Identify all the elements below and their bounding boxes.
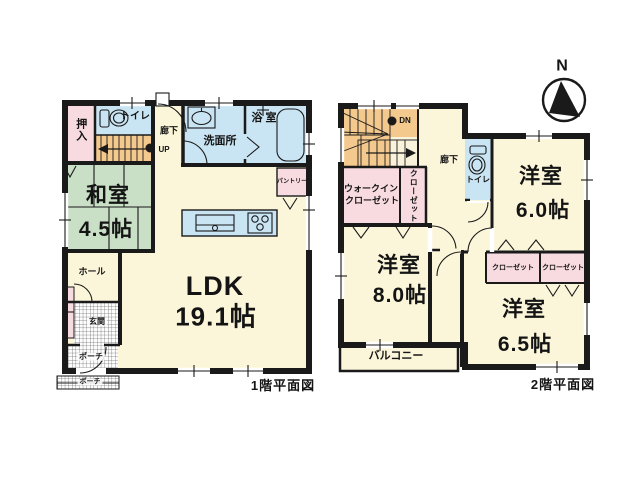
north-arrow-icon — [543, 79, 585, 121]
label-approach: ポーチ — [78, 378, 103, 385]
label-corridor-1f: 廊下 — [160, 126, 178, 135]
label-bath: 浴 室 — [251, 113, 276, 125]
label-wic-line2: クローゼット — [345, 196, 399, 205]
label-porch: ポーチ — [77, 353, 105, 361]
label-washitsu-name: 和室 — [86, 185, 130, 207]
kitchen-counter — [182, 210, 277, 236]
stair-newel-dn — [388, 117, 397, 126]
floorplan-canvas: N 押入 トイレ 廊下 UP 洗面所 浴 室 パントリー 和室 4.5帖 ホール… — [0, 0, 640, 480]
label-room65-name: 洋室 — [502, 299, 546, 321]
caption-floor2: 2階平面図 — [531, 378, 595, 392]
label-up: UP — [158, 146, 169, 154]
label-pantry: パントリー — [277, 179, 307, 185]
label-oshiire: 押入 — [74, 118, 86, 142]
label-wic-line1: ウォークイン — [344, 184, 398, 193]
label-ldk-name: LDK — [186, 272, 245, 300]
label-room80-name: 洋室 — [377, 255, 421, 277]
label-closet-b: クローゼット — [542, 264, 584, 271]
label-washitsu-size: 4.5帖 — [79, 219, 133, 241]
label-toilet-2f: トイレ — [466, 176, 490, 184]
label-room60-size: 6.0帖 — [516, 200, 570, 222]
label-closet-a: クローゼット — [492, 264, 534, 271]
label-room60-name: 洋室 — [519, 166, 563, 188]
label-washroom: 洗面所 — [204, 136, 237, 148]
label-closet-hall: クローゼット — [409, 169, 417, 223]
north-label: N — [556, 59, 568, 76]
label-room65-size: 6.5帖 — [498, 334, 552, 356]
label-ldk-size: 19.1帖 — [175, 303, 257, 330]
label-hall: ホール — [78, 267, 105, 276]
room-washroom — [183, 103, 245, 165]
label-dn: DN — [399, 117, 411, 125]
label-toilet-1f: トイレ — [120, 112, 150, 123]
label-genkan: 玄関 — [87, 318, 107, 326]
label-corridor-2f: 廊下 — [440, 155, 458, 164]
label-balcony: バルコニー — [369, 351, 424, 363]
floor2-plan — [335, 100, 593, 373]
caption-floor1: 1階平面図 — [251, 379, 315, 393]
label-room80-size: 8.0帖 — [373, 285, 427, 307]
